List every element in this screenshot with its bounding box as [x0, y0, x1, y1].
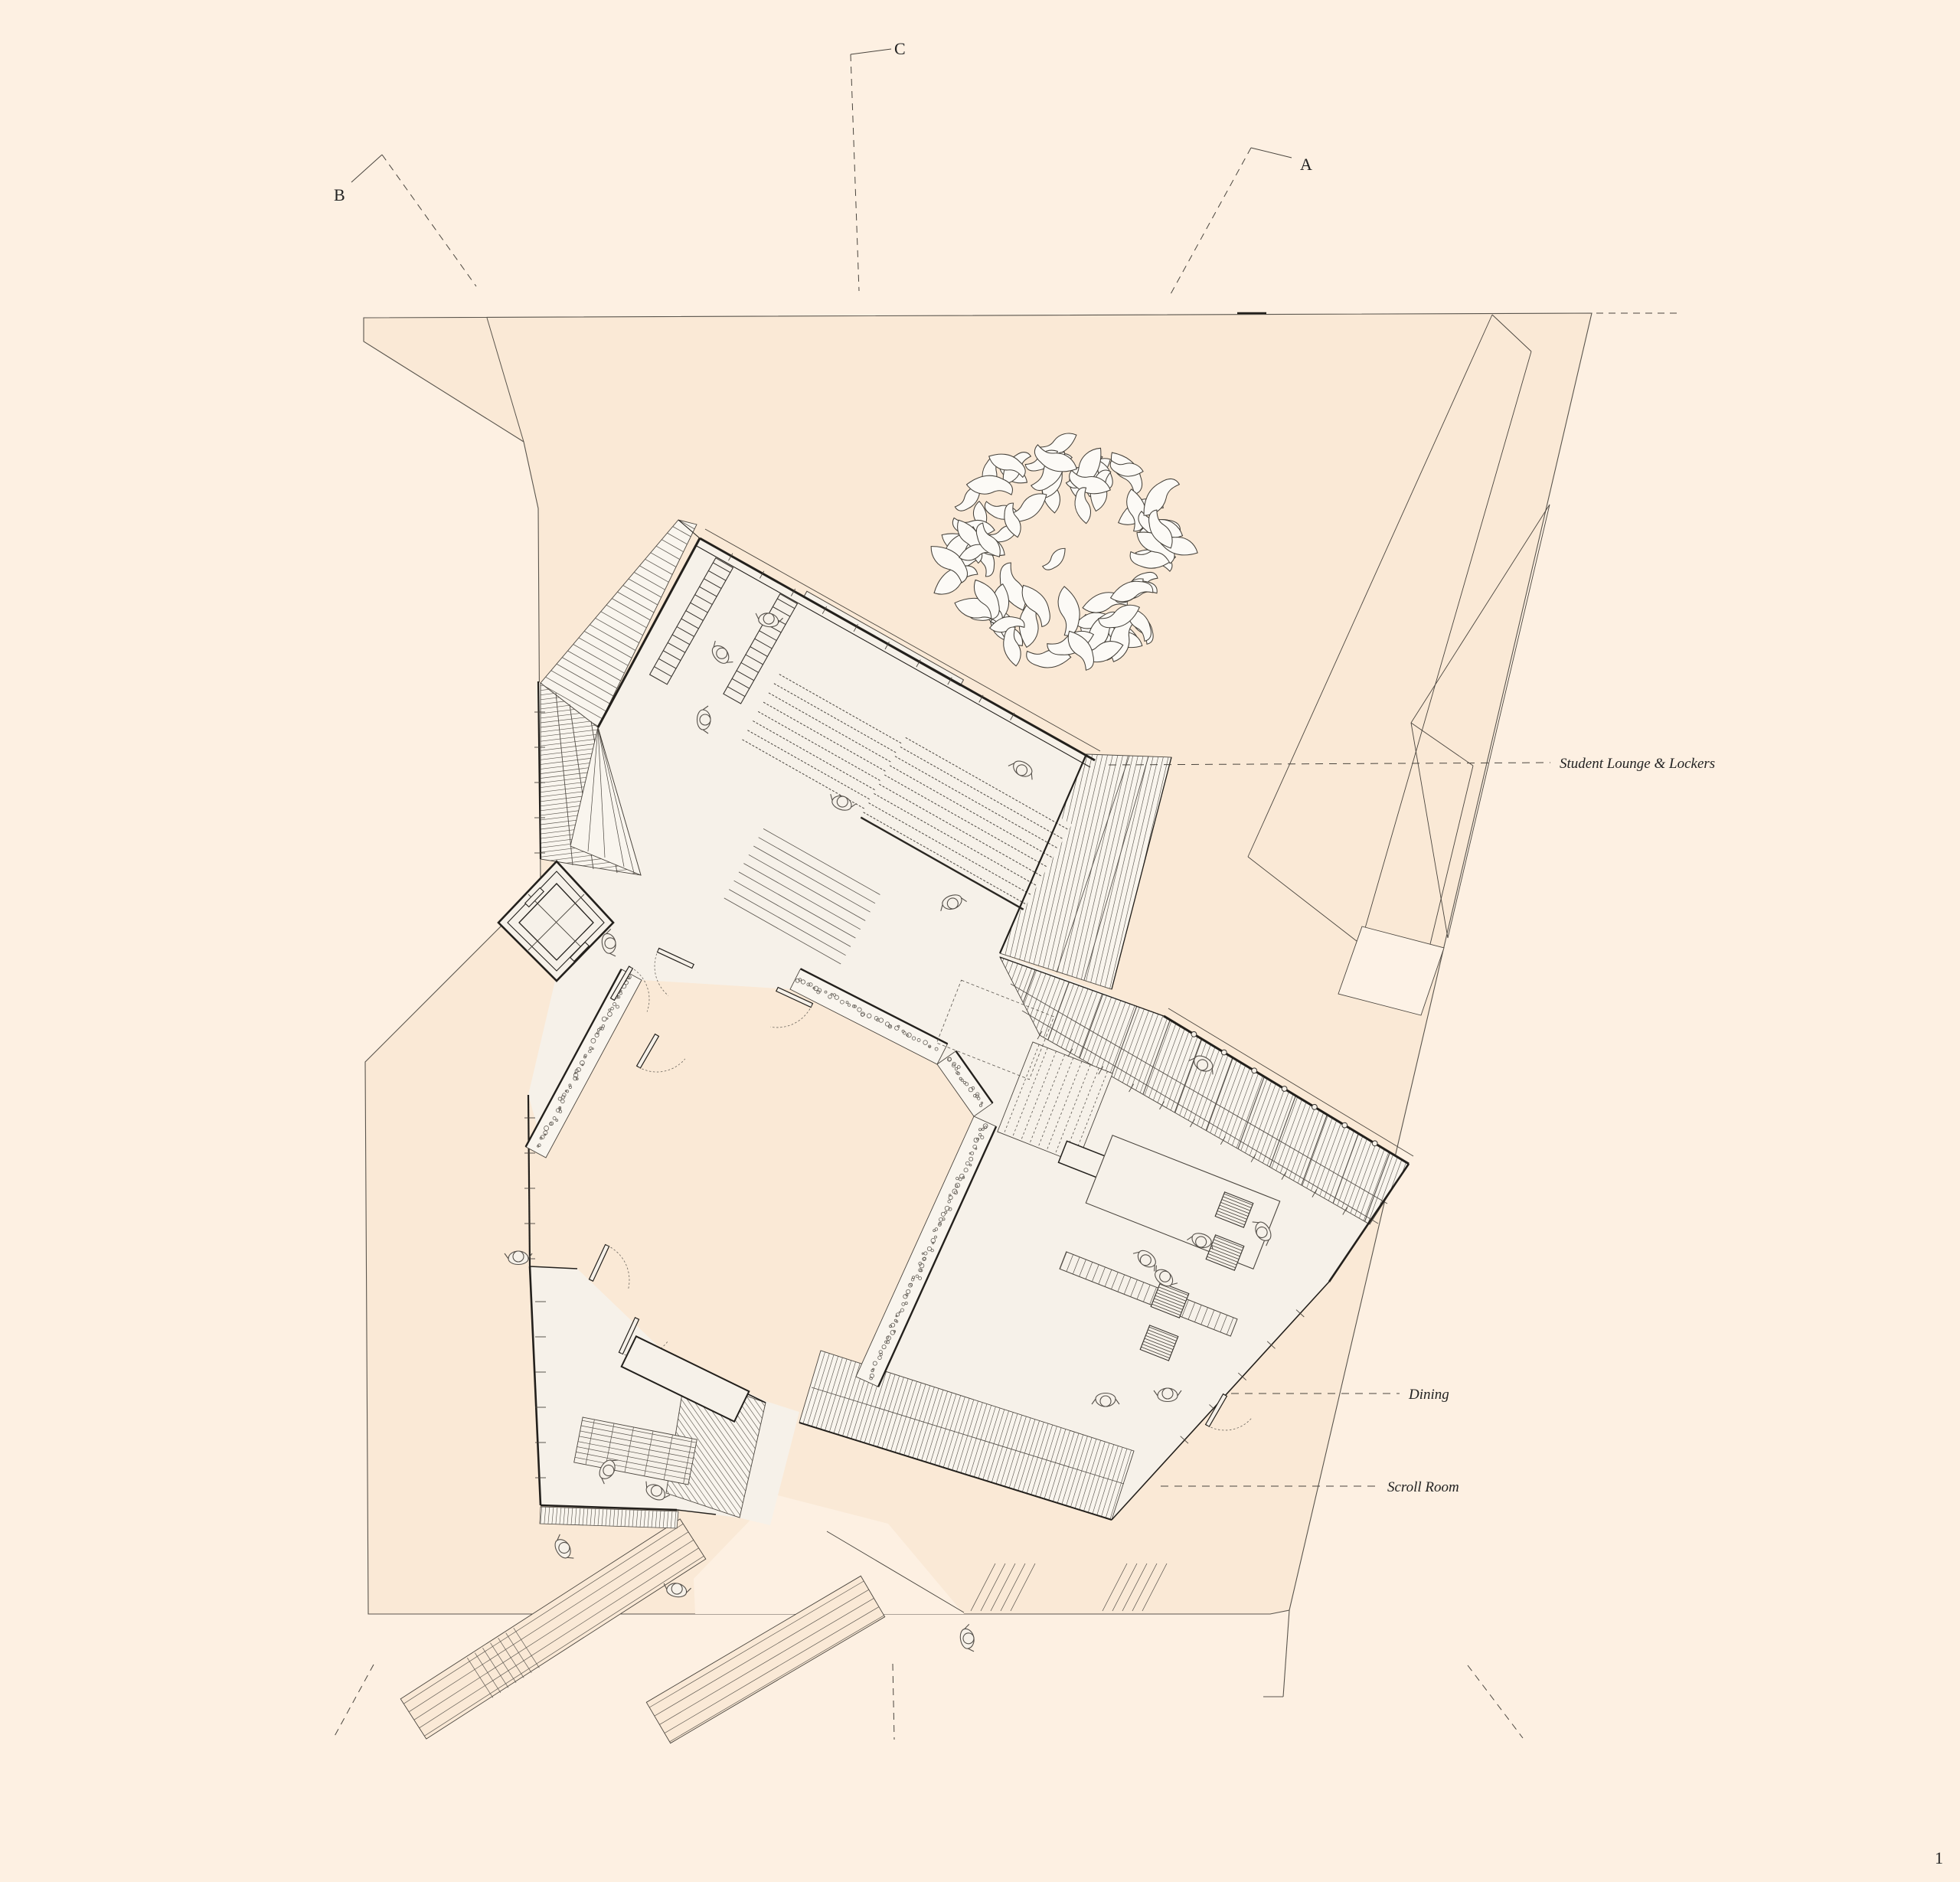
svg-text:A: A — [1300, 155, 1312, 174]
svg-text:1: 1 — [1935, 1848, 1943, 1867]
svg-text:Scroll Room: Scroll Room — [1387, 1479, 1459, 1495]
svg-text:C: C — [894, 39, 906, 58]
svg-text:Dining: Dining — [1408, 1387, 1449, 1403]
svg-text:Student Lounge & Lockers: Student Lounge & Lockers — [1560, 756, 1715, 772]
svg-text:B: B — [334, 185, 345, 204]
